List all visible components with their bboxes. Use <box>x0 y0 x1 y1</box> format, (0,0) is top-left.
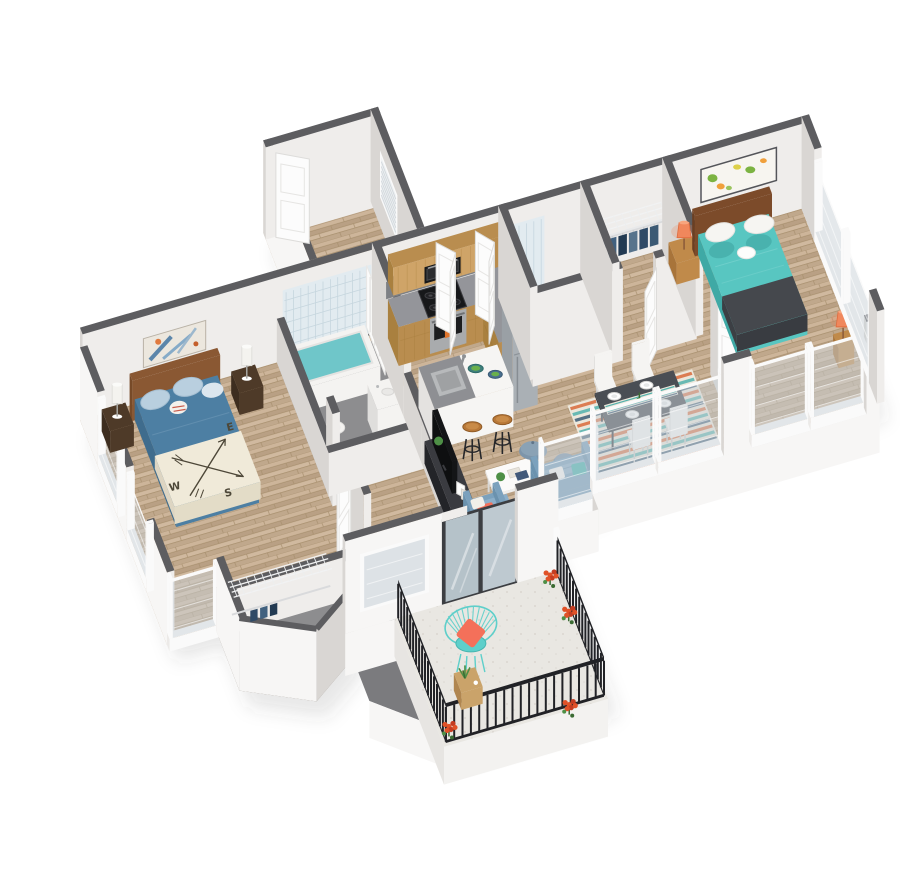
apartment-3d-floor-plan: WSE architectural 3D floor plan render <box>0 0 900 896</box>
floor-plan-3d-render: WSE <box>0 0 900 896</box>
